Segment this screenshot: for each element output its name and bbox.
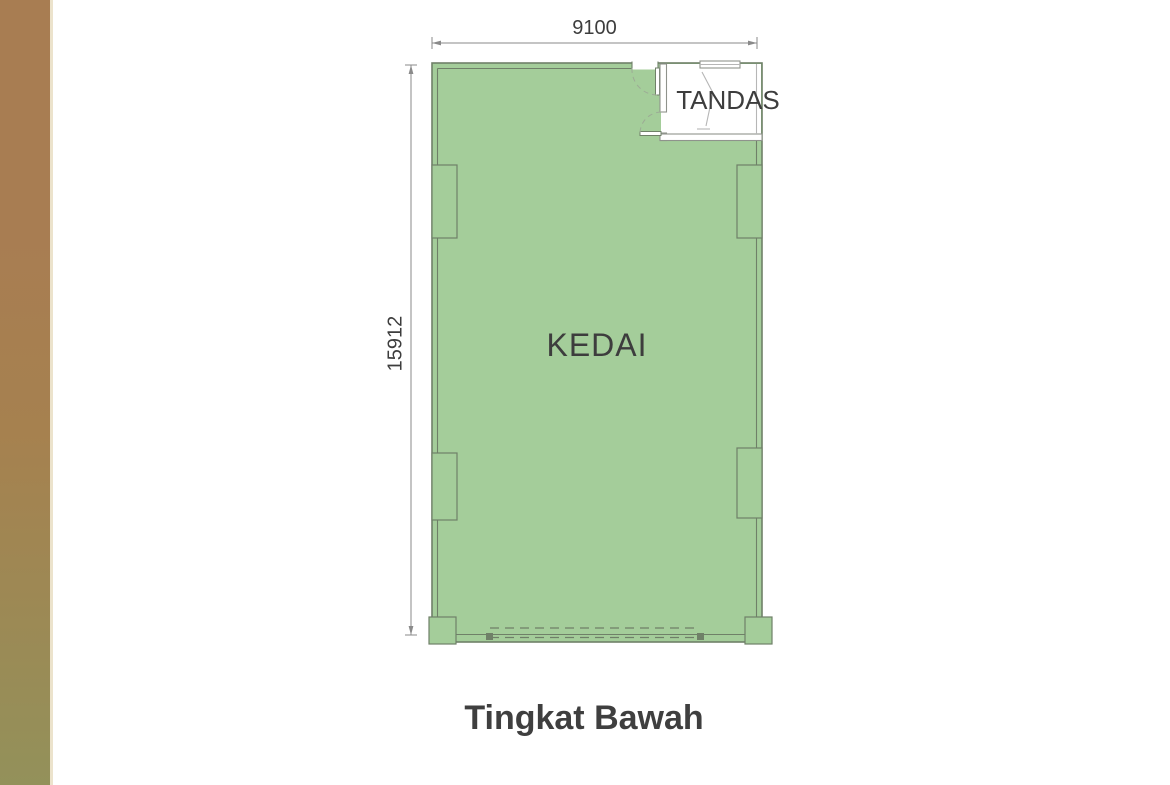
floor-plan-page: 9100 15912 KEDAI TANDAS Tingkat Bawah	[0, 0, 1170, 785]
door-leaf	[656, 68, 660, 95]
dimension-width-label: 9100	[432, 17, 757, 40]
toilet-window	[700, 61, 740, 68]
door-leaf	[640, 132, 661, 136]
column-right	[745, 617, 772, 644]
room-label-kedai: KEDAI	[432, 327, 762, 364]
floor-plan-drawing	[0, 0, 1170, 785]
dimension-height-label: 15912	[385, 294, 408, 394]
floor-title: Tingkat Bawah	[434, 699, 734, 738]
room-label-tandas: TANDAS	[660, 85, 796, 116]
column-left	[429, 617, 456, 644]
